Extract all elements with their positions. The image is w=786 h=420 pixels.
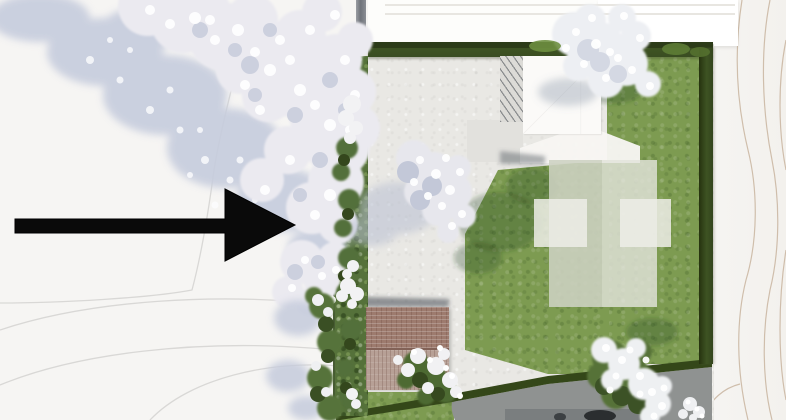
site-plan-canvas	[0, 0, 786, 420]
arrow-right-icon	[15, 189, 295, 261]
annotation-layer	[0, 0, 786, 420]
